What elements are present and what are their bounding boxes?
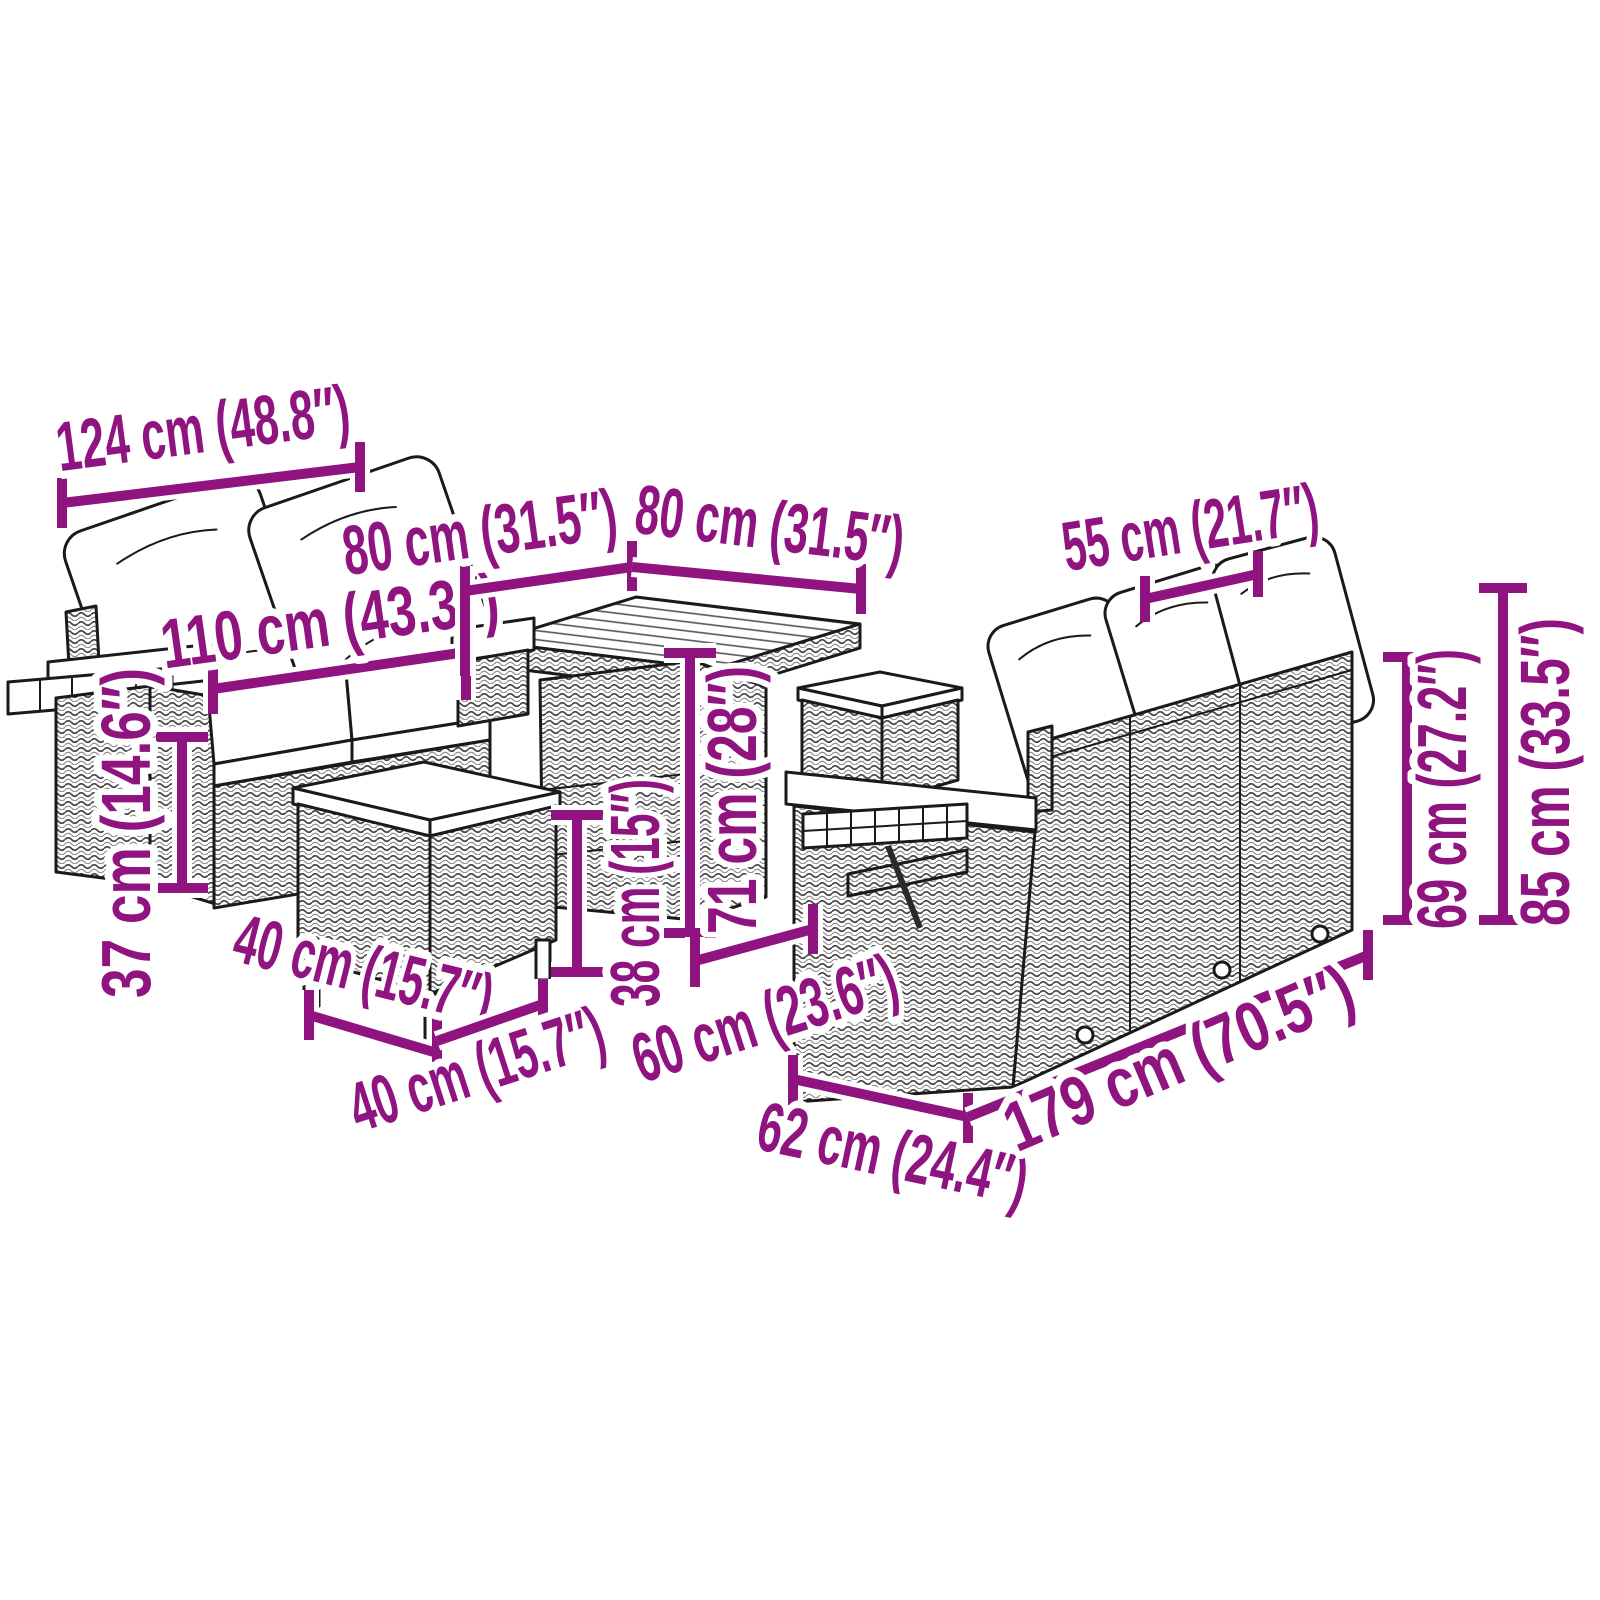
vent-hole	[1214, 962, 1230, 978]
dimension-85cm: 85 cm (33.5″)	[1479, 588, 1584, 926]
armrest-front	[794, 806, 1035, 1102]
dimension-diagram: 124 cm (48.8″) 110 cm (43.3″) 80 cm (31.…	[0, 0, 1600, 1600]
vent-hole	[1312, 926, 1328, 942]
dimension-80cm-depth: 80 cm (31.5″)	[631, 470, 908, 614]
dimension-label: 69 cm (27.2″)	[1403, 649, 1481, 929]
dimension-38cm: 38 cm (15″)	[551, 779, 674, 1007]
dimension-label: 71 cm (28″)	[693, 666, 771, 934]
right-sofa-armrest	[786, 772, 1036, 1102]
dimension-label: 38 cm (15″)	[596, 779, 674, 1007]
dimension-71cm: 71 cm (28″)	[664, 653, 771, 934]
dimension-69cm: 69 cm (27.2″)	[1383, 649, 1481, 929]
stool-leg	[536, 940, 550, 980]
diagram-svg: 124 cm (48.8″) 110 cm (43.3″) 80 cm (31.…	[0, 0, 1600, 1600]
vent-hole	[1077, 1027, 1093, 1043]
dimension-label: 85 cm (33.5″)	[1506, 618, 1584, 926]
dimension-label: 37 cm (14.6″)	[87, 668, 165, 998]
